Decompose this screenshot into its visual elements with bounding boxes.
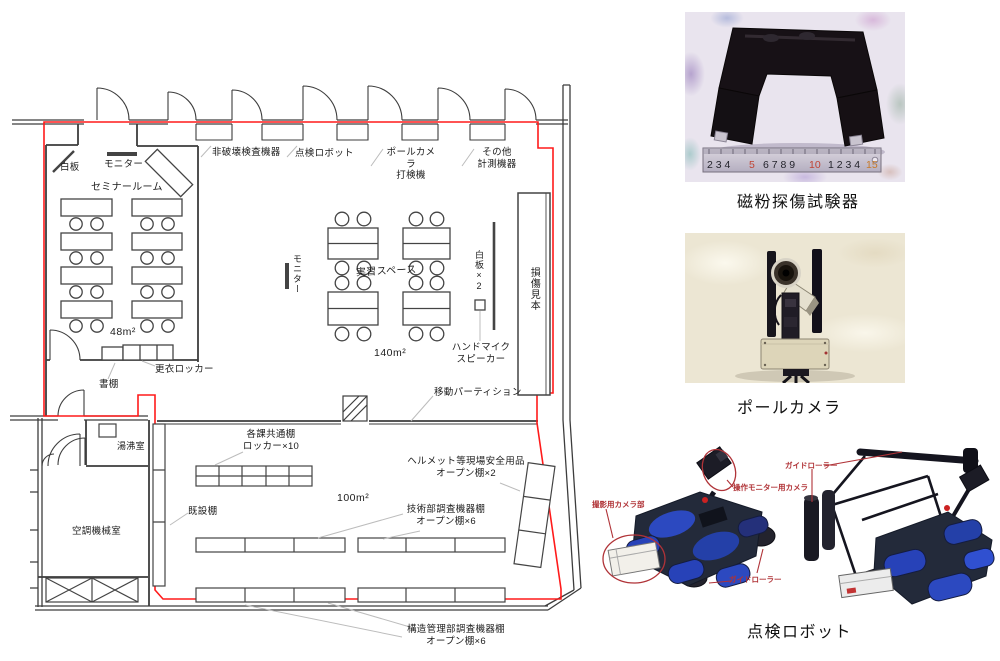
annotation-monitor-camera: 操作モニター用カメラ [733, 482, 808, 493]
label-whiteboards-x2: 白板×2 [473, 250, 484, 292]
label-helmet-line2: オープン棚×2 [405, 468, 527, 480]
ruler-numbers-2: 5 [749, 159, 755, 171]
ruler-numbers-1: 2 3 4 [707, 159, 731, 171]
label-hot-water-room: 湯沸室 [117, 441, 145, 452]
label-struct-line1: 構造管理部調査機器棚 [402, 624, 510, 636]
caption-magnetic-tester: 磁粉探傷試験器 [737, 188, 860, 212]
magnetic-tester-drawing: 2 3 4 5 6 7 8 9 10 1 2 3 4 15 [685, 12, 905, 182]
label-seminar-room: セミナールーム [91, 182, 163, 194]
corridor-niches [196, 124, 505, 140]
label-tapping-machine: 打検機 [382, 170, 440, 182]
label-other-line2: 計測機器 [472, 159, 522, 171]
robot-right-illustration [804, 448, 996, 604]
page: 白板 モニター セミナールーム 48m² 書棚 更衣ロッカー 非破壊検査機器 点… [0, 0, 1000, 661]
ruler-numbers-4: 10 [809, 159, 821, 171]
caption-inspection-robot: 点検ロボット [747, 618, 852, 642]
label-hvac-room: 空調機械室 [72, 526, 121, 538]
partition-stack [343, 396, 367, 421]
label-handmic: ハンドマイク [448, 342, 514, 354]
annotation-camera-unit: 撮影用カメラ部 [592, 499, 645, 510]
label-handmic-speaker: ハンドマイク スピーカー [448, 342, 514, 365]
label-helmet-shelf: ヘルメット等現場安全用品 オープン棚×2 [405, 456, 527, 479]
label-training-area: 140m² [374, 347, 406, 360]
label-common-shelf-line1: 各課共通棚 [236, 429, 306, 441]
label-pole-camera: ポールカメラ 打検機 [382, 147, 440, 182]
label-main-area: 100m² [337, 492, 369, 505]
annotation-guide-roller-left: ガイドローラー [729, 574, 782, 585]
label-other-equipment: その他 計測機器 [472, 147, 522, 170]
label-tech-shelf: 技術部調査機器棚 オープン棚×6 [400, 504, 492, 527]
pole-camera-drawing [685, 233, 905, 383]
label-whiteboard: 白板 [60, 162, 80, 174]
label-change-locker: 更衣ロッカー [155, 364, 214, 376]
label-pole-camera-line1: ポールカメラ [382, 147, 440, 170]
ruler: 2 3 4 5 6 7 8 9 10 1 2 3 4 15 [703, 148, 881, 172]
label-partition: 移動パーティション [434, 387, 522, 399]
photo-pole-camera [685, 233, 905, 383]
ruler-numbers-6: 15 [866, 159, 878, 171]
label-monitor-seminar: モニター [104, 159, 143, 171]
label-struct-line2: オープン棚×6 [402, 636, 510, 648]
label-inspection-robot: 点検ロボット [295, 148, 354, 160]
label-common-shelf: 各課共通棚 ロッカー×10 [236, 429, 306, 452]
robot-left-illustration [603, 445, 775, 590]
label-ndt-equipment: 非破壊検査機器 [212, 147, 281, 159]
ruler-numbers-3: 6 7 8 9 [763, 159, 795, 171]
label-damage-sample: 損傷見本 [527, 267, 539, 311]
annotation-guide-roller-right: ガイドローラー [785, 460, 838, 471]
pole-camera-device [761, 249, 829, 383]
photo-magnetic-particle-tester: 2 3 4 5 6 7 8 9 10 1 2 3 4 15 [685, 12, 905, 182]
label-existing-shelf: 既設棚 [188, 506, 217, 518]
label-speaker: スピーカー [448, 354, 514, 366]
label-common-shelf-line2: ロッカー×10 [236, 441, 306, 453]
label-struct-shelf: 構造管理部調査機器棚 オープン棚×6 [402, 624, 510, 647]
ruler-numbers-5: 1 2 3 4 [828, 159, 860, 171]
label-monitor-training: モニター [291, 254, 302, 294]
yoke-tester-body [711, 28, 884, 146]
caption-pole-camera: ポールカメラ [737, 394, 842, 418]
label-helmet-line1: ヘルメット等現場安全用品 [405, 456, 527, 468]
label-other-line1: その他 [472, 147, 522, 159]
label-bookshelf: 書棚 [99, 379, 119, 391]
label-tech-line1: 技術部調査機器棚 [400, 504, 492, 516]
label-seminar-area: 48m² [110, 326, 136, 339]
label-tech-line2: オープン棚×6 [400, 516, 492, 528]
